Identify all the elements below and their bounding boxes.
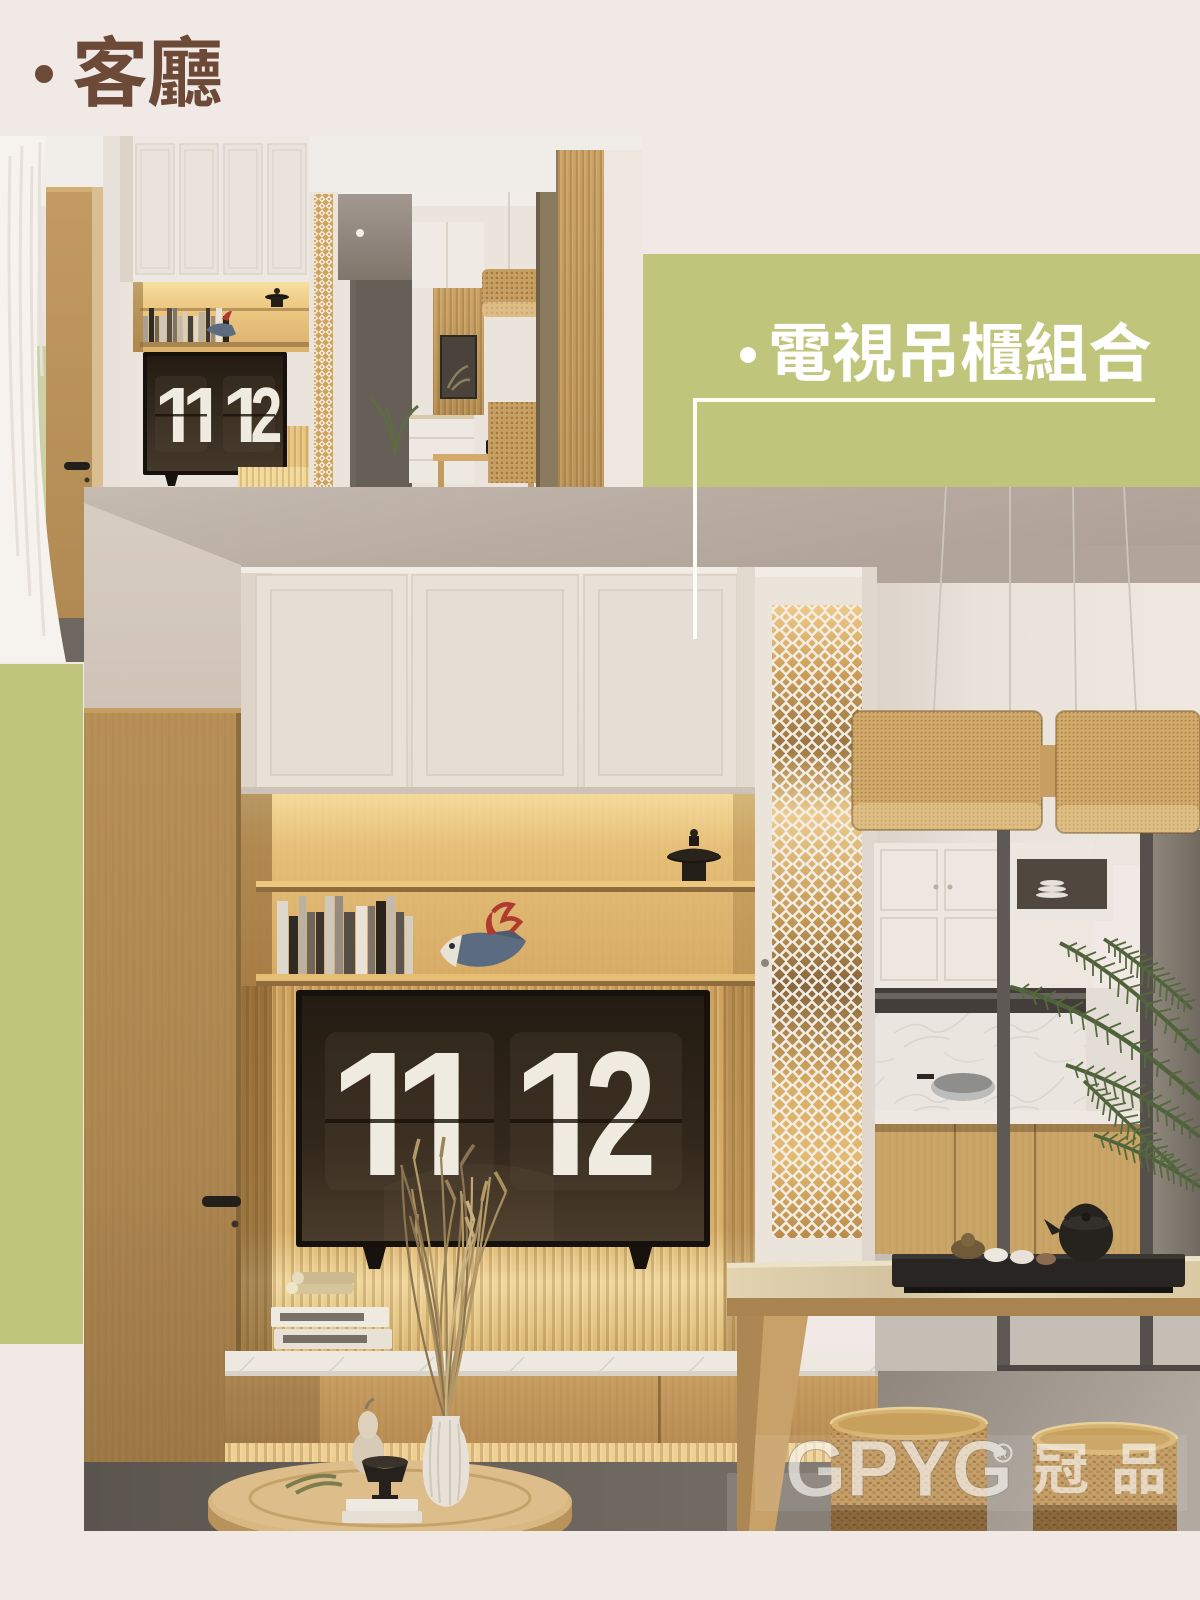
svg-text:GPYG: GPYG xyxy=(785,1424,1013,1513)
svg-text:R: R xyxy=(999,1447,1008,1461)
